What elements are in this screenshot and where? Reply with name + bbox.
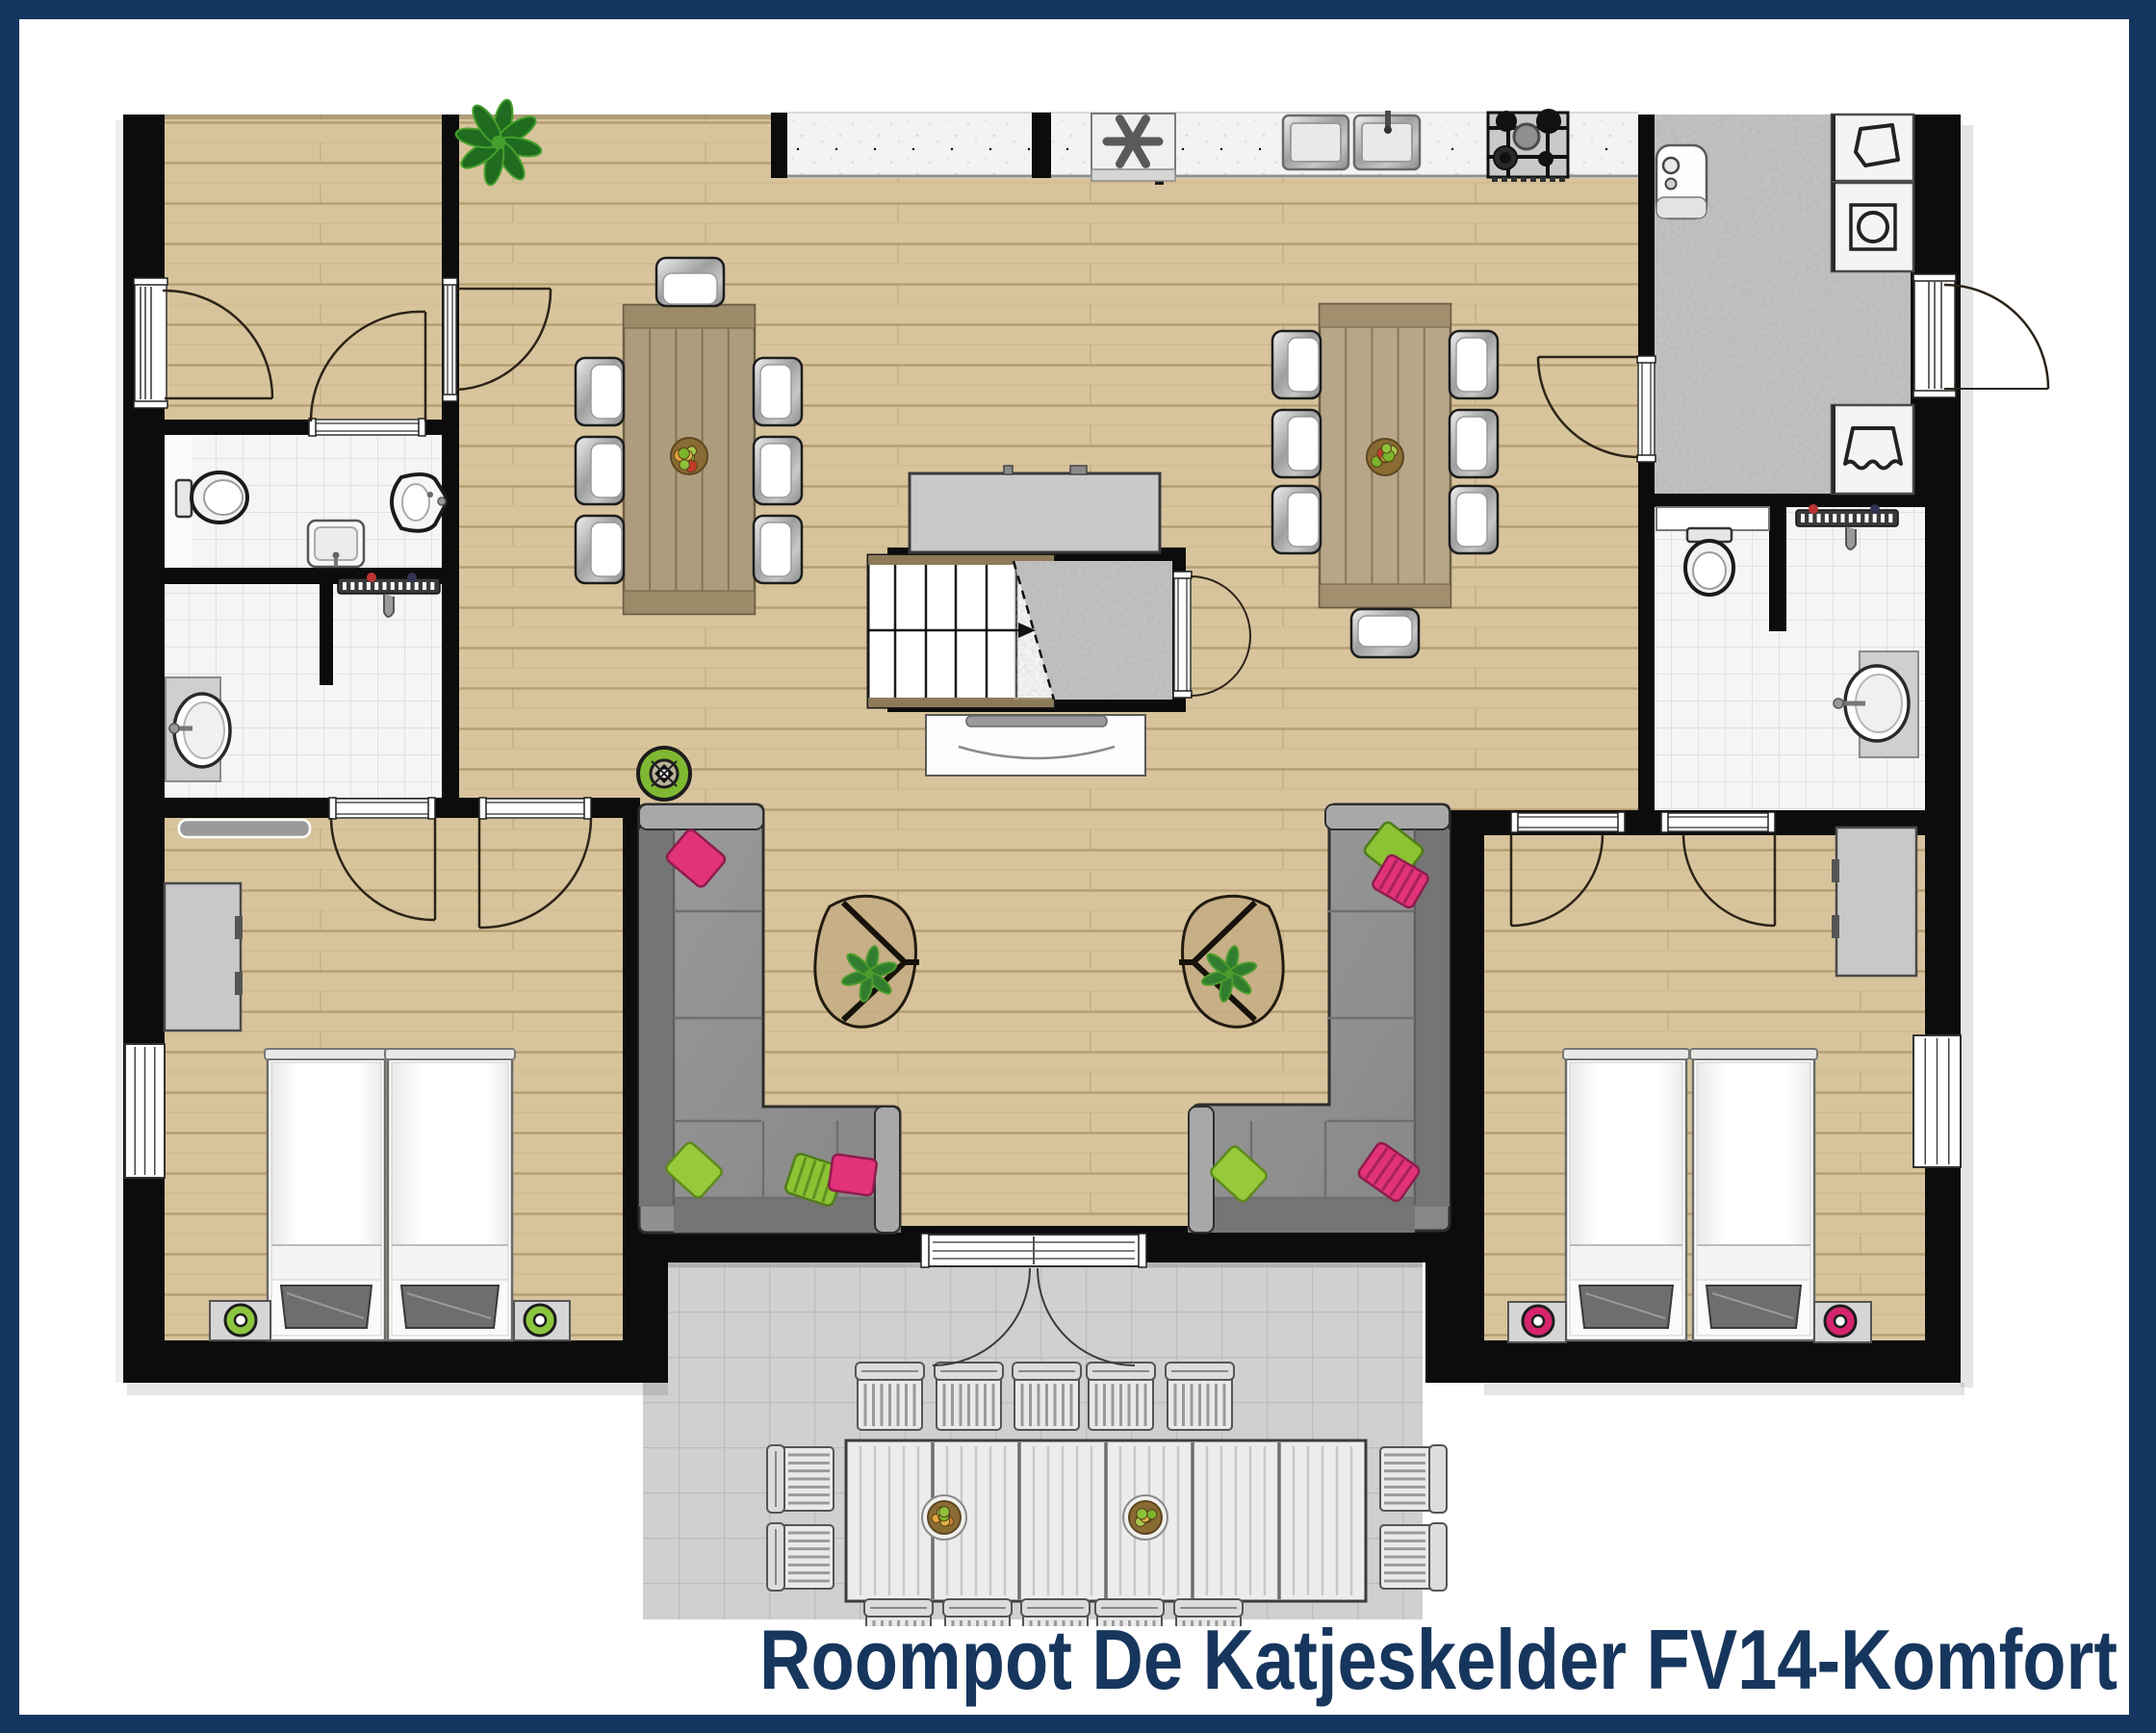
svg-text:Roompot De Katjeskelder FV14-K: Roompot De Katjeskelder FV14-Komfort [759,1612,2117,1707]
